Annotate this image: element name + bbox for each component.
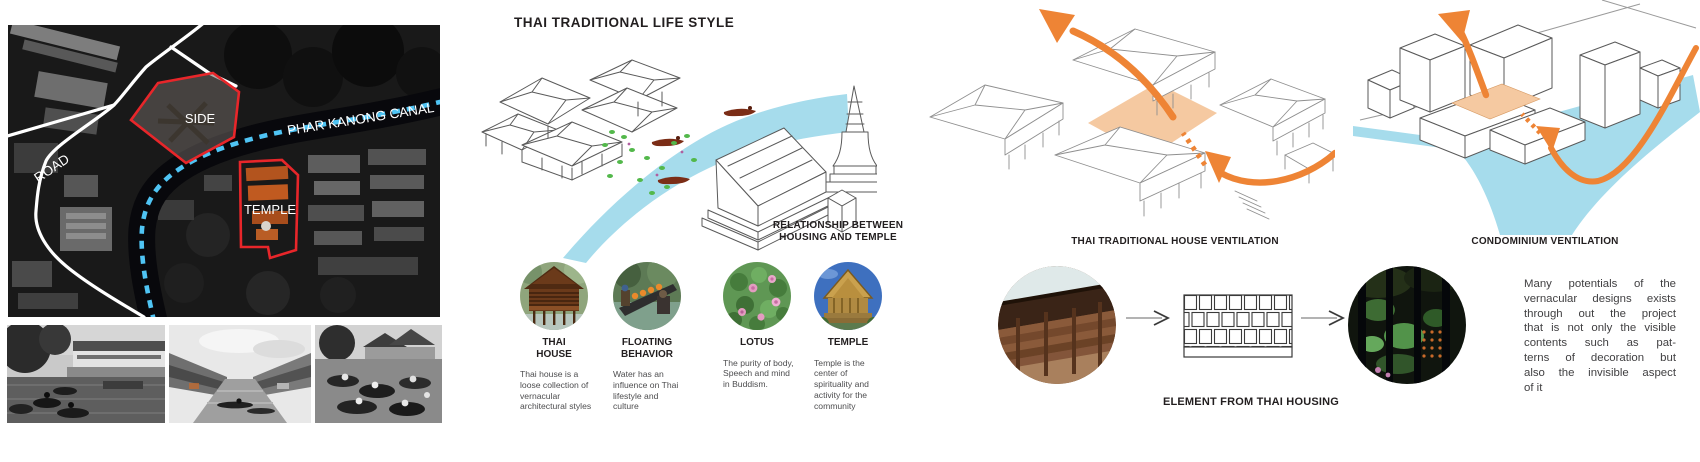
right-arrow-icon <box>1126 310 1174 326</box>
vignette-label: LOTUS <box>717 337 797 349</box>
paragraph-line: through out the project <box>1524 307 1676 322</box>
wooden-wall-photo <box>998 266 1116 384</box>
vignette-label: TEMPLE <box>808 337 888 349</box>
site-area-label: SIDE <box>185 111 216 126</box>
vignette-temple: TEMPLE Temple is the center of spiritual… <box>808 262 888 411</box>
relationship-caption-line2: HOUSING AND TEMPLE <box>770 232 906 244</box>
airflow-exit-arrowhead <box>1039 9 1075 43</box>
historic-photo-floating-market <box>169 325 311 423</box>
relationship-caption-line1: RELATIONSHIP BETWEEN <box>770 220 906 232</box>
vignette-description: Temple is the center of spirituality and… <box>808 358 888 412</box>
temple-area-label: TEMPLE <box>244 202 296 217</box>
historic-photo-market-crowd <box>315 325 442 423</box>
presentation-board: SIDE TEMPLE ROAD PHAR KANONG CANAL <box>0 0 1700 462</box>
right-arrow-icon <box>1301 310 1349 326</box>
vignette-thai-house: THAI HOUSE Thai house is a loose collect… <box>514 262 594 412</box>
floating-behavior-photo <box>613 262 681 330</box>
historic-photo-strip <box>7 325 442 423</box>
vernacular-paragraph: Many potentials of the vernacular design… <box>1524 277 1676 395</box>
thai-house-cluster-drawing <box>482 60 680 180</box>
pavilion-screen-photo <box>1348 266 1466 384</box>
element-row-caption: ELEMENT FROM THAI HOUSING <box>1160 396 1342 408</box>
condominium-ventilation-diagram <box>1340 0 1700 235</box>
paragraph-line: also the invisible aspect <box>1524 366 1676 381</box>
paragraph-line: Many potentials of the <box>1524 277 1676 292</box>
house-ventilation-caption: THAI TRADITIONAL HOUSE VENTILATION <box>1035 236 1315 248</box>
site-map-panel: SIDE TEMPLE ROAD PHAR KANONG CANAL <box>8 25 440 317</box>
paragraph-line: vernacular designs exists <box>1524 292 1676 307</box>
brick-lattice-diagram <box>1183 294 1295 362</box>
vignette-description: Water has an influence on Thai lifestyle… <box>607 369 687 412</box>
satellite-map: SIDE TEMPLE ROAD PHAR KANONG CANAL <box>8 25 440 317</box>
vignette-description: Thai house is a loose collection of vern… <box>514 369 594 412</box>
relationship-caption: RELATIONSHIP BETWEEN HOUSING AND TEMPLE <box>770 220 906 243</box>
vignette-label: THAI HOUSE <box>526 337 582 360</box>
condo-ventilation-caption: CONDOMINIUM VENTILATION <box>1425 236 1665 248</box>
paragraph-line: of it <box>1524 381 1676 396</box>
paragraph-line: contents such as pat- <box>1524 336 1676 351</box>
thai-house-ventilation-diagram <box>905 5 1335 230</box>
vignette-floating-behavior: FLOATING BEHAVIOR Water has an influence… <box>607 262 687 412</box>
vignette-description: The purity of body, Speech and mind in B… <box>717 358 797 390</box>
historic-photo-canal-boats <box>7 325 165 423</box>
vignette-lotus: LOTUS The purity of body, Speech and min… <box>717 262 797 390</box>
paragraph-line: that is not only the visible <box>1524 321 1676 336</box>
temple-photo <box>814 262 882 330</box>
lifestyle-title: THAI TRADITIONAL LIFE STYLE <box>514 15 734 30</box>
lotus-photo <box>723 262 791 330</box>
thai-house-photo <box>520 262 588 330</box>
paragraph-line: terns of decoration but <box>1524 351 1676 366</box>
vignette-label: FLOATING BEHAVIOR <box>615 337 679 360</box>
